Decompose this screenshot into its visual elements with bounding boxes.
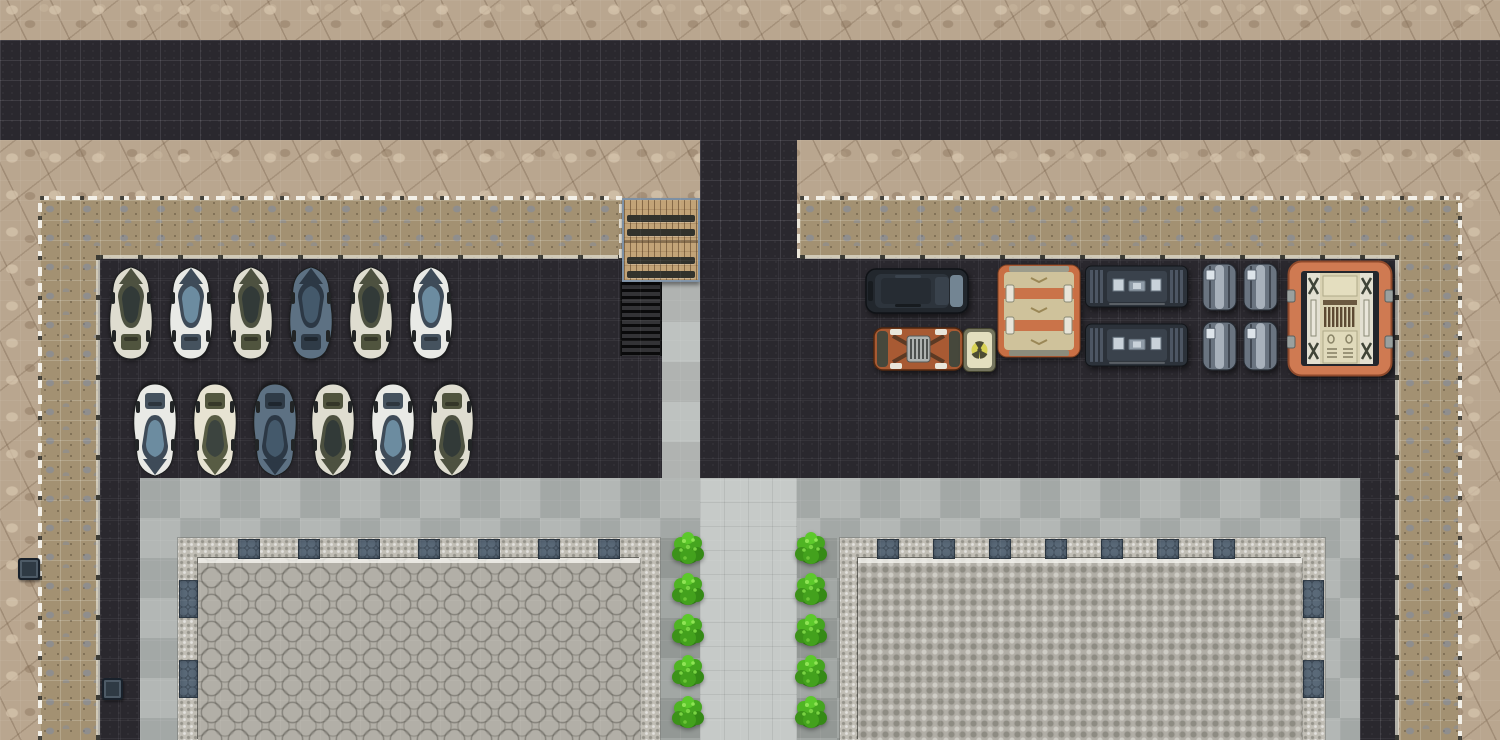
deck-accent-tile — [1213, 539, 1235, 559]
center-road — [700, 140, 797, 260]
inner-fence — [98, 255, 622, 259]
black-van[interactable] — [865, 266, 970, 316]
gravel-path-right — [1400, 200, 1458, 740]
bush — [672, 572, 704, 608]
asphalt-margin-left — [98, 478, 140, 740]
bridge-crossbar — [627, 215, 695, 222]
sports-car-olive[interactable] — [345, 264, 397, 361]
deck-accent-tile — [179, 580, 198, 618]
bridge-crossbar — [627, 229, 695, 236]
orange-cart[interactable] — [873, 324, 964, 374]
bush — [795, 572, 827, 608]
gravel-path-top-right — [800, 200, 1460, 258]
deck-accent-tile — [989, 539, 1011, 559]
deck-accent-tile — [238, 539, 260, 559]
top-road — [0, 40, 1500, 140]
game-map — [0, 0, 1500, 740]
bridge-seam — [624, 240, 698, 243]
deck-accent-tile — [1303, 660, 1324, 698]
deck-accent-tile — [877, 539, 899, 559]
bush — [795, 695, 827, 731]
sports-car-dark_blue[interactable] — [249, 382, 301, 479]
inner-fence — [1395, 255, 1399, 740]
bush — [795, 531, 827, 567]
outer-fence — [1458, 196, 1462, 740]
bush — [795, 613, 827, 649]
bush — [795, 654, 827, 690]
orange-cargo-container[interactable] — [1287, 260, 1393, 377]
gravel-path-left — [40, 200, 98, 740]
deck-accent-tile — [179, 660, 198, 698]
deck-accent-tile — [478, 539, 500, 559]
sports-car-white_blue[interactable] — [405, 264, 457, 361]
sports-car-olive[interactable] — [426, 382, 478, 479]
metal-barrel-pair[interactable] — [1202, 320, 1278, 372]
stair-landing — [662, 282, 700, 478]
bridge-crossbar — [627, 271, 695, 278]
bush — [672, 613, 704, 649]
bush — [672, 654, 704, 690]
sports-car-white_blue[interactable] — [129, 382, 181, 479]
strapped-cargo-container[interactable] — [997, 264, 1081, 358]
deck-accent-tile — [1101, 539, 1123, 559]
armored-trailer[interactable] — [1085, 322, 1188, 368]
asphalt-margin-right — [1360, 478, 1398, 740]
deck-accent-tile — [1157, 539, 1179, 559]
bush — [672, 531, 704, 567]
radiation-crate[interactable] — [963, 328, 996, 372]
sports-car-olive[interactable] — [307, 382, 359, 479]
hex-platform-right — [858, 558, 1302, 740]
sports-car-cream_olive[interactable] — [189, 382, 241, 479]
wooden-bridge[interactable] — [622, 198, 700, 282]
gravel-path-top-left — [40, 200, 622, 258]
sports-car-white_blue[interactable] — [165, 264, 217, 361]
bridge-crossbar — [627, 257, 695, 264]
utility-box[interactable] — [102, 678, 123, 700]
stairs-down — [620, 282, 662, 356]
outer-fence — [40, 196, 622, 200]
sports-car-olive[interactable] — [225, 264, 277, 361]
inner-fence — [96, 255, 100, 740]
sports-car-dark_blue[interactable] — [285, 264, 337, 361]
central-walkway — [700, 478, 797, 740]
deck-accent-tile — [1045, 539, 1067, 559]
sports-car-olive[interactable] — [105, 264, 157, 361]
outer-fence — [800, 196, 1460, 200]
deck-accent-tile — [1303, 580, 1324, 618]
deck-accent-tile — [418, 539, 440, 559]
deck-accent-tile — [358, 539, 380, 559]
inner-fence — [800, 255, 1398, 259]
utility-box[interactable] — [18, 558, 40, 580]
deck-accent-tile — [298, 539, 320, 559]
bush — [672, 695, 704, 731]
deck-accent-tile — [538, 539, 560, 559]
deck-accent-tile — [598, 539, 620, 559]
gate-fence — [797, 198, 800, 258]
outer-fence — [38, 196, 42, 740]
hex-platform-left — [198, 558, 640, 740]
metal-barrel-pair[interactable] — [1202, 262, 1278, 312]
deck-accent-tile — [933, 539, 955, 559]
armored-trailer[interactable] — [1085, 264, 1188, 309]
sports-car-white_blue[interactable] — [367, 382, 419, 479]
